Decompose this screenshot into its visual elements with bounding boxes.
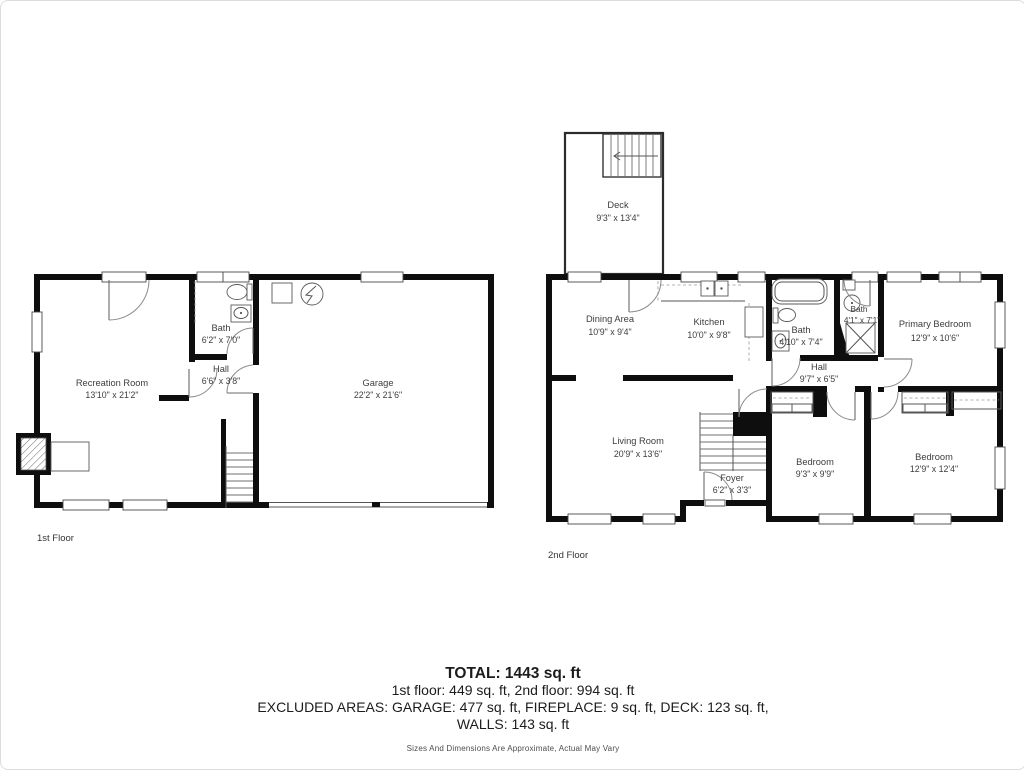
hall-label: Hall (213, 364, 229, 374)
living-room-dims: 20'9" x 13'6" (614, 449, 662, 459)
main-bath-toilet-fixture (773, 308, 796, 323)
garage-dims: 22'2" x 21'6" (354, 390, 402, 400)
main-bath-dims: 4'10" x 7'4" (779, 337, 822, 347)
bedroom-b-closet (902, 392, 948, 413)
foyer-label: Foyer (720, 473, 744, 483)
first-floor-plan: Recreation Room 13'10" x 21'2" Bath 6'2"… (16, 272, 494, 544)
dining-area-door (629, 280, 661, 312)
deck-dims: 9'3" x 13'4" (596, 213, 639, 223)
primary-bedroom-door (884, 359, 912, 387)
shower-fixture (846, 323, 875, 353)
excluded-areas-text: EXCLUDED AREAS: GARAGE: 477 sq. ft, FIRE… (1, 699, 1024, 716)
garage-door-opening (269, 501, 487, 509)
bedroom-a-door (827, 392, 855, 420)
water-heater-fixture (301, 283, 323, 305)
dining-area-label: Dining Area (586, 314, 635, 324)
bedroom-a-closet (771, 392, 813, 413)
main-bath-door (772, 358, 800, 386)
walls-area-text: WALLS: 143 sq. ft (1, 716, 1024, 733)
small-bath-dims: 4'1" x 7'1" (844, 315, 880, 325)
bedroom-a-dims: 9'3" x 9'9" (796, 469, 834, 479)
bedroom-b-door (871, 392, 898, 419)
hall-dims: 6'6" x 3'8" (202, 376, 240, 386)
living-room-label: Living Room (612, 436, 664, 446)
floorplan-page: Recreation Room 13'10" x 21'2" Bath 6'2"… (0, 0, 1024, 770)
dining-area-dims: 10'9" x 9'4" (588, 327, 631, 337)
hall-2-label: Hall (811, 362, 827, 372)
kitchen-dims: 10'0" x 9'8" (687, 330, 730, 340)
kitchen-label: Kitchen (693, 317, 724, 327)
total-area-text: TOTAL: 1443 sq. ft (1, 665, 1024, 682)
recreation-room-label: Recreation Room (76, 378, 149, 388)
foyer-dims: 6'2" x 3'3" (713, 485, 751, 495)
first-floor-stairs (226, 446, 253, 508)
primary-bedroom-dims: 12'9" x 10'6" (911, 333, 959, 343)
floor-plan-canvas: Recreation Room 13'10" x 21'2" Bath 6'2"… (1, 1, 1024, 769)
sink-fixture (231, 305, 251, 322)
first-floor-caption: 1st Floor (37, 533, 74, 544)
bedroom-b-dims: 12'9" x 12'4" (910, 464, 958, 474)
bath-label: Bath (211, 323, 230, 333)
deck-label: Deck (607, 200, 629, 210)
bedroom-a-label: Bedroom (796, 457, 834, 467)
second-floor-plan: Deck 9'3" x 13'4" Dining Area 10'9" x 9'… (546, 133, 1005, 561)
floor-areas-text: 1st floor: 449 sq. ft, 2nd floor: 994 sq… (1, 682, 1024, 699)
disclaimer-text: Sizes And Dimensions Are Approximate, Ac… (1, 740, 1024, 757)
hall-2-dims: 9'7" x 6'5" (800, 374, 838, 384)
bedroom-b-label: Bedroom (915, 452, 953, 462)
kitchen-sink-fixture (701, 281, 728, 296)
small-bath-label: Bath (850, 304, 867, 314)
primary-bedroom-label: Primary Bedroom (899, 319, 972, 329)
toilet-fixture (227, 284, 252, 300)
garage-label: Garage (362, 378, 393, 388)
fireplace (16, 433, 89, 475)
recreation-room-dims: 13'10" x 21'2" (85, 390, 138, 400)
washer-fixture (272, 283, 292, 303)
recreation-room-door (109, 280, 149, 320)
bath-dims: 6'2" x 7'0" (202, 335, 240, 345)
main-bath-label: Bath (791, 325, 810, 335)
second-floor-caption: 2nd Floor (548, 550, 588, 561)
bathtub-fixture (772, 279, 827, 304)
bedroom-b-shelf-closet (952, 392, 1001, 409)
area-summary: TOTAL: 1443 sq. ft 1st floor: 449 sq. ft… (1, 665, 1024, 757)
